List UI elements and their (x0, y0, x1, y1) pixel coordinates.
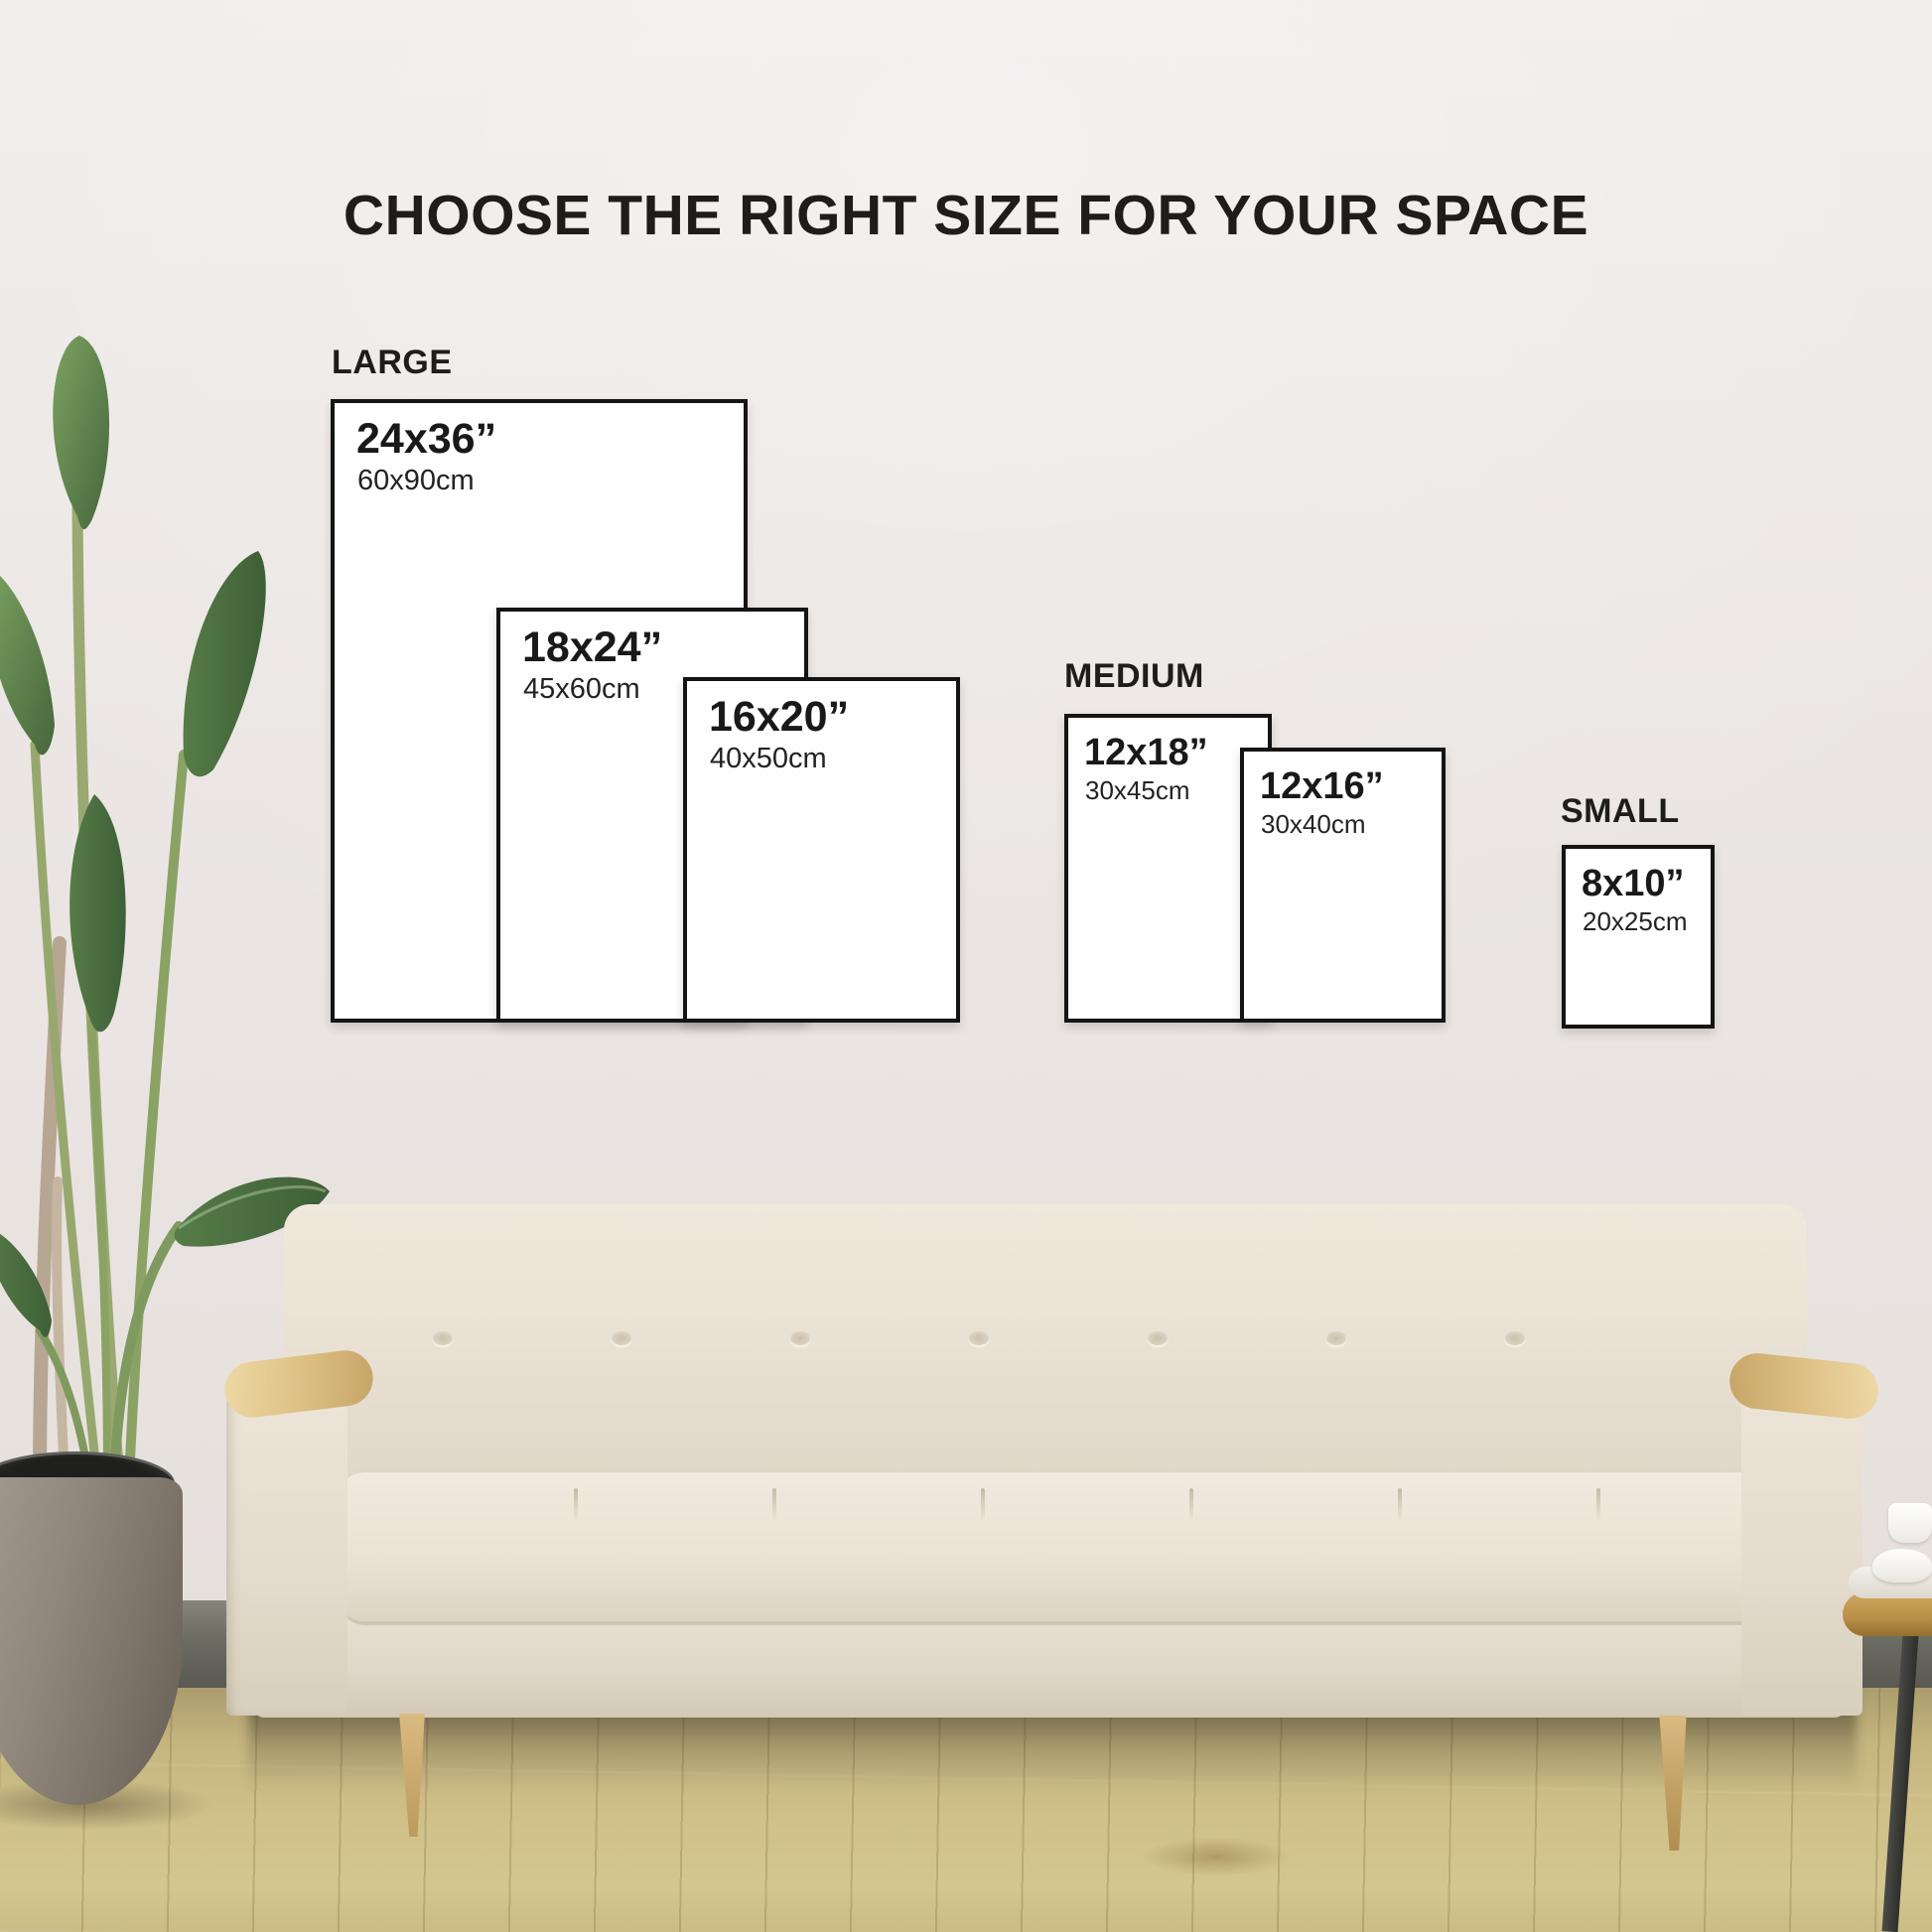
tuft-button (1148, 1331, 1168, 1345)
size-frame-12x16: 12x16” 30x40cm (1240, 748, 1446, 1023)
couch-right-arm (1741, 1388, 1863, 1716)
size-cm: 60x90cm (357, 466, 744, 495)
cup (1888, 1503, 1932, 1543)
group-label-small: SMALL (1561, 792, 1680, 831)
couch-seat-cushion (336, 1472, 1773, 1621)
size-frame-16x20: 16x20” 40x50cm (683, 677, 960, 1023)
size-guide-mockup: CHOOSE THE RIGHT SIZE FOR YOUR SPACE LAR… (0, 0, 1932, 1932)
couch-backrest (284, 1204, 1807, 1502)
size-inches: 12x16” (1260, 767, 1442, 807)
group-label-medium: MEDIUM (1064, 657, 1204, 696)
tuft-button (433, 1331, 453, 1345)
size-frame-8x10: 8x10” 20x25cm (1562, 845, 1715, 1029)
size-inches: 16x20” (709, 695, 956, 740)
side-table-top (1843, 1592, 1932, 1636)
size-cm: 30x40cm (1261, 811, 1442, 838)
group-label-large: LARGE (332, 344, 453, 382)
seat-dimple (981, 1488, 985, 1522)
plant-pot (0, 1451, 183, 1805)
page-title: CHOOSE THE RIGHT SIZE FOR YOUR SPACE (0, 183, 1932, 248)
tuft-button (1505, 1331, 1525, 1345)
tuft-button (790, 1331, 810, 1345)
couch-left-arm (226, 1388, 347, 1716)
seat-dimple (1398, 1488, 1402, 1522)
tuft-button (612, 1331, 631, 1345)
couch-base (254, 1610, 1845, 1718)
size-inches: 24x36” (356, 417, 744, 462)
size-inches: 8x10” (1582, 865, 1711, 904)
floor-stain (1142, 1837, 1291, 1876)
pot-body (0, 1477, 183, 1805)
tuft-button (1326, 1331, 1346, 1345)
bowl (1872, 1549, 1932, 1583)
seat-dimple (1596, 1488, 1600, 1522)
seat-dimple (574, 1488, 578, 1522)
seat-dimple (772, 1488, 776, 1522)
seat-dimple (1189, 1488, 1193, 1522)
size-inches: 18x24” (522, 625, 804, 670)
size-cm: 20x25cm (1583, 908, 1711, 935)
size-cm: 40x50cm (710, 744, 956, 773)
tuft-button (969, 1331, 989, 1345)
